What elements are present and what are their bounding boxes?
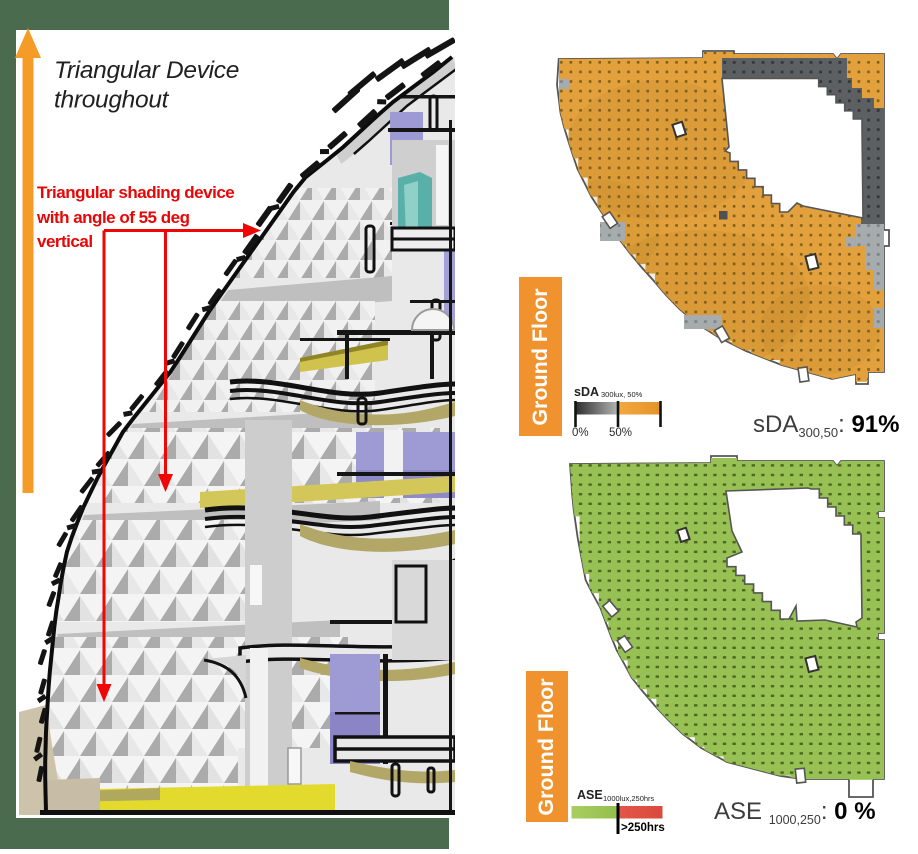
svg-text:1000lux,250hrs: 1000lux,250hrs: [603, 794, 655, 803]
svg-text:300lux, 50%: 300lux, 50%: [601, 390, 643, 399]
svg-text:0%: 0%: [572, 427, 589, 439]
svg-text:>250hrs: >250hrs: [621, 822, 665, 834]
svg-text:Ground Floor: Ground Floor: [534, 678, 558, 816]
svg-text:50%: 50%: [609, 427, 632, 439]
svg-text:with angle of 55 deg: with angle of 55 deg: [36, 208, 190, 227]
svg-text:ASE: ASE: [577, 788, 603, 802]
svg-text:Triangular Device: Triangular Device: [54, 57, 239, 84]
svg-text:vertical: vertical: [37, 232, 93, 251]
svg-text:sDA: sDA: [574, 385, 599, 399]
svg-text:Ground Floor: Ground Floor: [528, 288, 552, 426]
svg-text:throughout: throughout: [54, 87, 170, 114]
svg-text:Triangular shading device: Triangular shading device: [37, 183, 234, 202]
